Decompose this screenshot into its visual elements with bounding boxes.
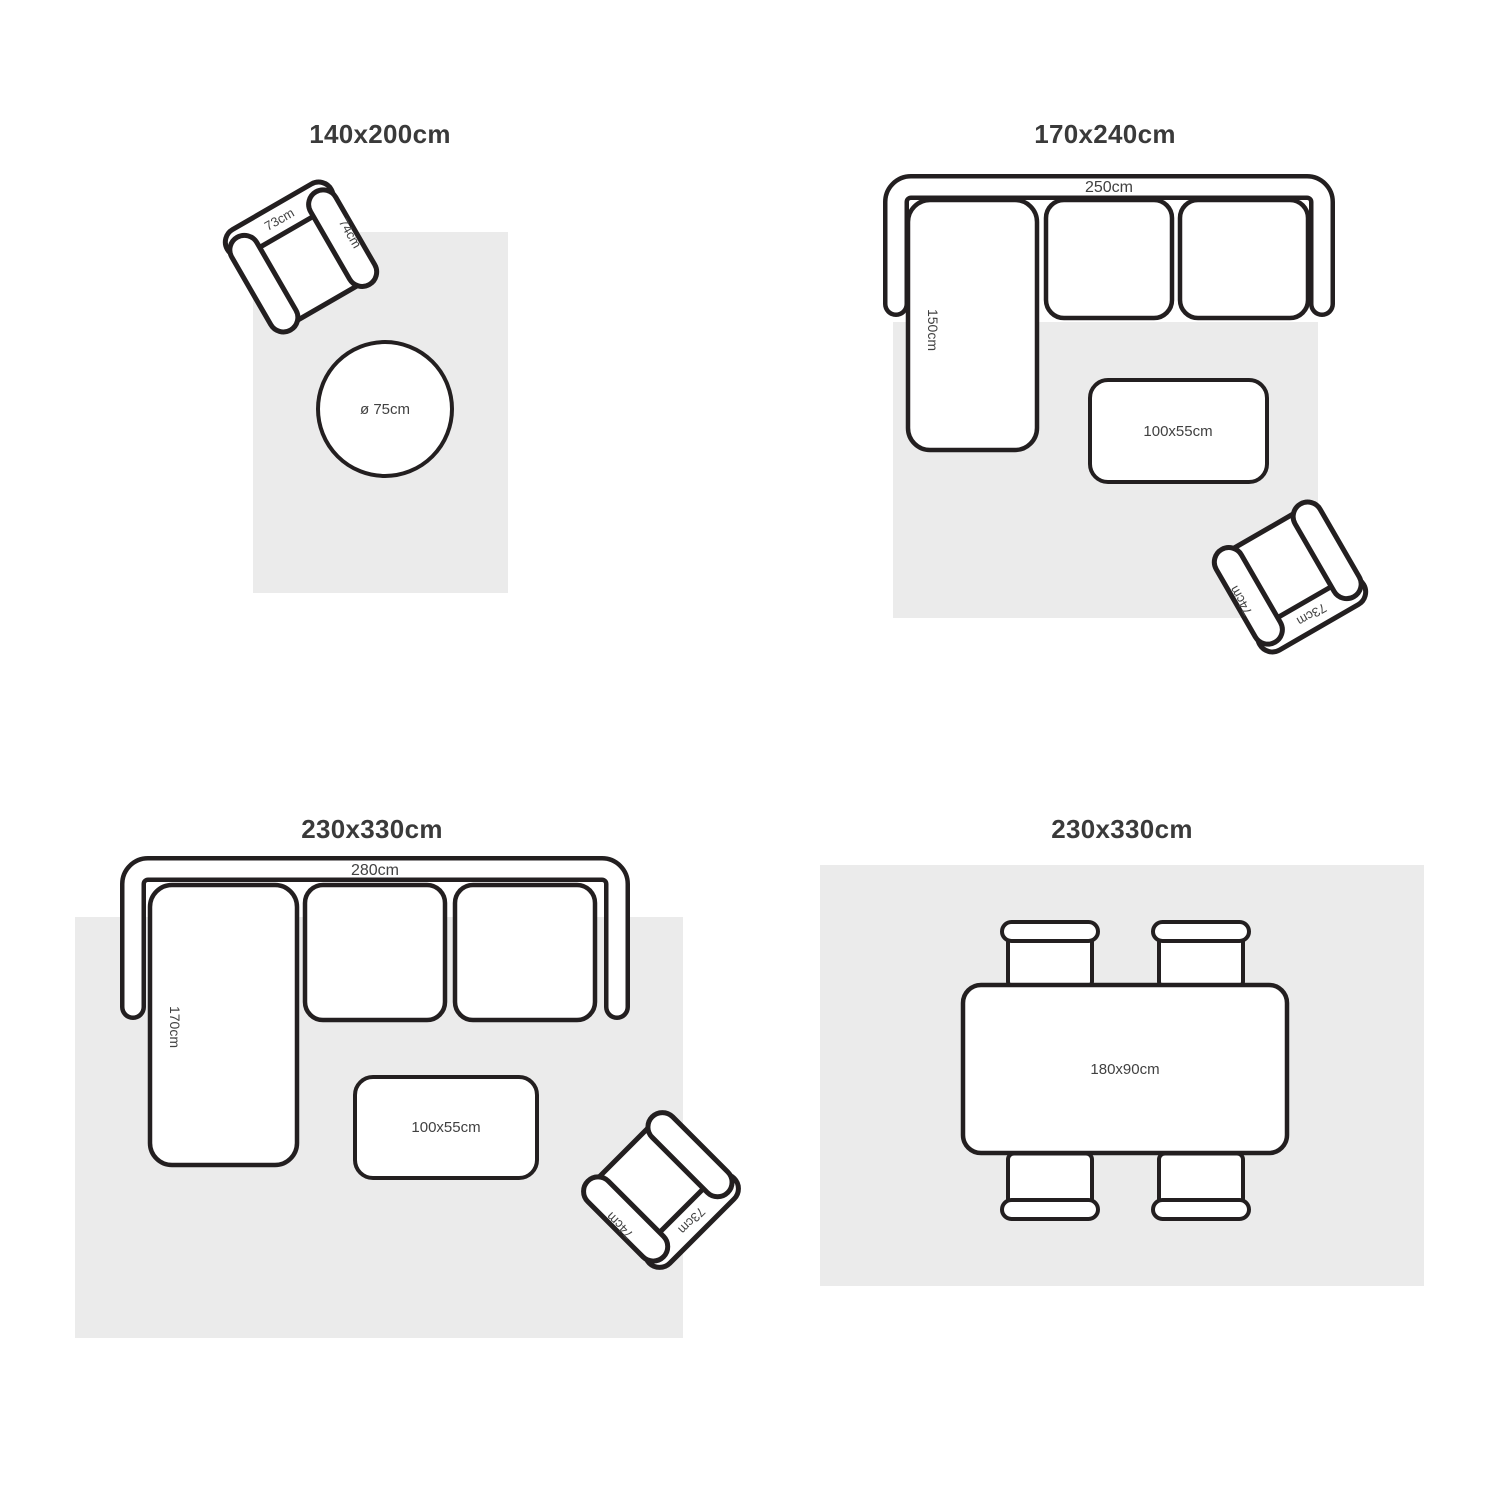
sofa-cushion <box>1046 200 1172 318</box>
round-table-diameter-label: ø 75cm <box>360 401 410 418</box>
coffee-table-size-label: 100x55cm <box>411 1119 480 1136</box>
sofa-cushion <box>305 885 445 1020</box>
dining-chair <box>1002 922 1098 988</box>
dining-chair <box>1002 1154 1098 1220</box>
panel-170x240: 170x240cm 100x55cm 250cm 150cm <box>893 119 1371 658</box>
rug-size-guide: 73cm 74cm 140x200cm ø 75cm 170x240cm 100… <box>0 0 1500 1500</box>
panel-title: 230x330cm <box>1051 814 1193 844</box>
panel-140x200: 140x200cm ø 75cm <box>220 119 508 593</box>
panel-title: 230x330cm <box>301 814 443 844</box>
sofa-width-label: 280cm <box>351 862 399 879</box>
panel-230x330-dining: 230x330cm 180x90cm <box>820 814 1424 1286</box>
dining-chair <box>1153 922 1249 988</box>
dining-chair <box>1153 1154 1249 1220</box>
sofa-width-label: 250cm <box>1085 179 1133 196</box>
panel-title: 170x240cm <box>1034 119 1176 149</box>
dining-table-size-label: 180x90cm <box>1090 1061 1159 1078</box>
sofa-cushion <box>455 885 595 1020</box>
coffee-table-size-label: 100x55cm <box>1143 423 1212 440</box>
size-guide-canvas: 73cm 74cm 140x200cm ø 75cm 170x240cm 100… <box>0 0 1500 1500</box>
panel-230x330-sofa: 230x330cm 100x55cm 280cm 170cm <box>75 814 744 1338</box>
panel-title: 140x200cm <box>309 119 451 149</box>
chaise-length-label: 170cm <box>167 1006 183 1048</box>
chaise-length-label: 150cm <box>925 309 941 351</box>
sofa-cushion <box>1180 200 1308 318</box>
